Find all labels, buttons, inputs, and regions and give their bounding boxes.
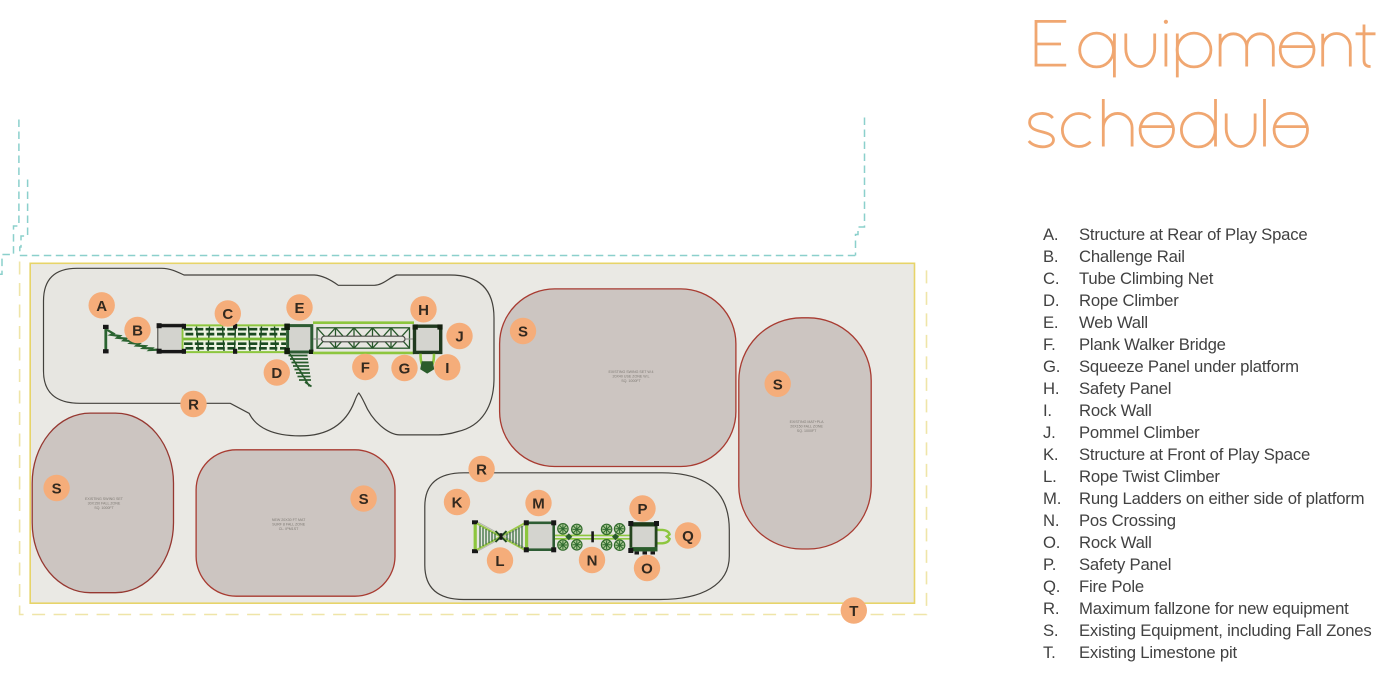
svg-text:H: H: [418, 302, 429, 319]
svg-text:SQ. 1000FT: SQ. 1000FT: [797, 429, 817, 433]
svg-text:R: R: [188, 397, 199, 414]
svg-text:NEW 20X30 FT MAT: NEW 20X30 FT MAT: [272, 518, 306, 522]
svg-text:CL. IPM1ST: CL. IPM1ST: [279, 527, 299, 531]
svg-text:N: N: [587, 553, 598, 570]
svg-text:20X150 FALL ZONE: 20X150 FALL ZONE: [790, 425, 823, 429]
svg-text:F: F: [361, 360, 370, 377]
svg-text:P: P: [637, 501, 647, 518]
svg-text:B: B: [132, 323, 143, 340]
svg-text:EXISTING MAT+PLA: EXISTING MAT+PLA: [790, 420, 825, 424]
svg-text:S: S: [359, 491, 369, 508]
svg-text:I: I: [445, 360, 449, 377]
svg-text:A: A: [96, 298, 107, 315]
svg-text:30X150 FALL ZONE: 30X150 FALL ZONE: [88, 502, 121, 506]
svg-text:M: M: [532, 496, 545, 513]
svg-text:T: T: [849, 603, 858, 620]
svg-text:D: D: [271, 365, 282, 382]
svg-text:SQ. 1000FT: SQ. 1000FT: [94, 506, 114, 510]
svg-text:R: R: [476, 462, 487, 479]
svg-text:E: E: [294, 300, 304, 317]
svg-text:G: G: [399, 361, 411, 378]
svg-text:C: C: [222, 306, 233, 323]
svg-text:EXISTING SWING SET: EXISTING SWING SET: [85, 497, 124, 501]
svg-text:SQ. 1000FT: SQ. 1000FT: [621, 379, 641, 383]
svg-text:Q: Q: [682, 528, 694, 545]
svg-text:S: S: [518, 324, 528, 341]
svg-text:S: S: [52, 481, 62, 498]
svg-text:L: L: [495, 553, 504, 570]
svg-text:J: J: [455, 329, 463, 346]
svg-text:K: K: [452, 495, 463, 512]
svg-text:SURF 8 FALL ZONE: SURF 8 FALL ZONE: [272, 523, 306, 527]
svg-text:EXISTING SWING SET W.4: EXISTING SWING SET W.4: [608, 370, 653, 374]
svg-text:20X40 USE ZONE W.L: 20X40 USE ZONE W.L: [613, 375, 650, 379]
svg-text:S: S: [773, 376, 783, 393]
svg-text:O: O: [641, 561, 653, 578]
